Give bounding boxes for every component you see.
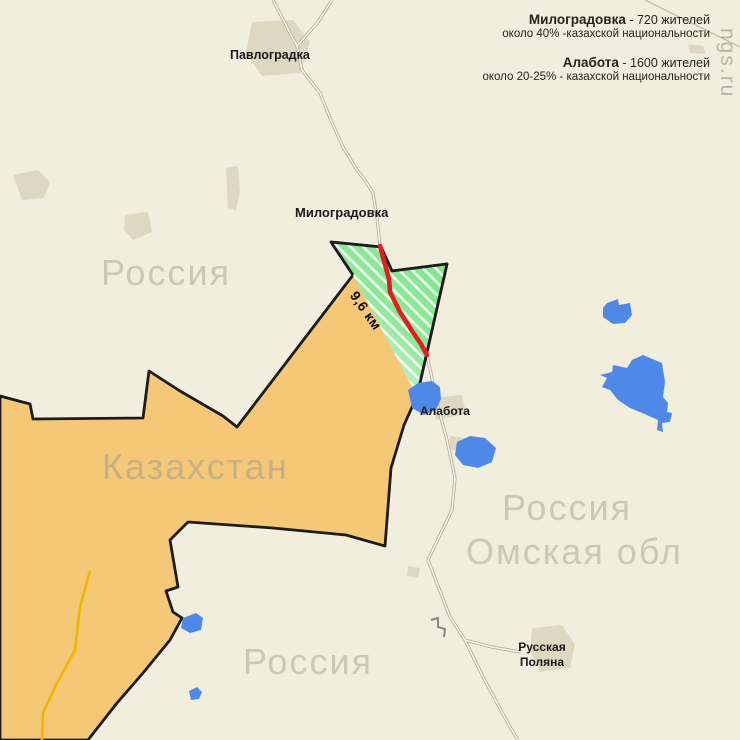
label-russia-nw: Россия	[101, 252, 231, 294]
info-gap	[482, 42, 710, 55]
road-north-branch-fill	[297, 0, 332, 46]
info-alabota-name: Алабота	[563, 55, 619, 70]
label-omsk-oblast: Омская обл	[466, 531, 683, 573]
settlement-patch-nw-1	[13, 170, 50, 200]
lake-tiny-south	[189, 687, 202, 700]
lake-small-north	[603, 299, 632, 324]
label-russia-south: Россия	[243, 641, 373, 683]
info-milogradovka-ethnicity: около 40% -казахской национальности	[482, 28, 710, 42]
label-alabota: Алабота	[420, 404, 470, 418]
lake-border	[181, 613, 203, 633]
info-milogradovka-name: Милоградовка	[529, 12, 626, 27]
lake-big	[600, 355, 672, 432]
lake-small-mid	[455, 436, 496, 468]
info-milogradovka-population: - 720 жителей	[626, 13, 710, 27]
label-pavlogradka: Павлоградка	[230, 48, 310, 62]
info-alabota-population: - 1600 жителей	[619, 56, 710, 70]
map-graphics	[0, 0, 740, 740]
info-alabota-ethnicity: около 20-25% - казахской национальности	[482, 71, 710, 85]
label-kazakhstan: Казахстан	[102, 446, 289, 488]
info-box: Милоградовка - 720 жителей около 40% -ка…	[482, 12, 710, 85]
settlement-patch-nw-3	[226, 166, 240, 210]
settlement-patch-small	[407, 566, 420, 578]
label-russkaya-polyana: Русская Поляна	[495, 640, 589, 670]
hamlet-mark	[431, 618, 445, 637]
info-line-milogradovka: Милоградовка - 720 жителей	[482, 12, 710, 28]
settlement-patch-nw-2	[124, 212, 152, 240]
info-line-alabota: Алабота - 1600 жителей	[482, 55, 710, 71]
label-milogradovka: Милоградовка	[295, 205, 388, 220]
map: Милоградовка - 720 жителей около 40% -ка…	[0, 0, 740, 740]
label-russia-east: Россия	[502, 487, 632, 529]
watermark: ngs.ru	[715, 28, 739, 98]
